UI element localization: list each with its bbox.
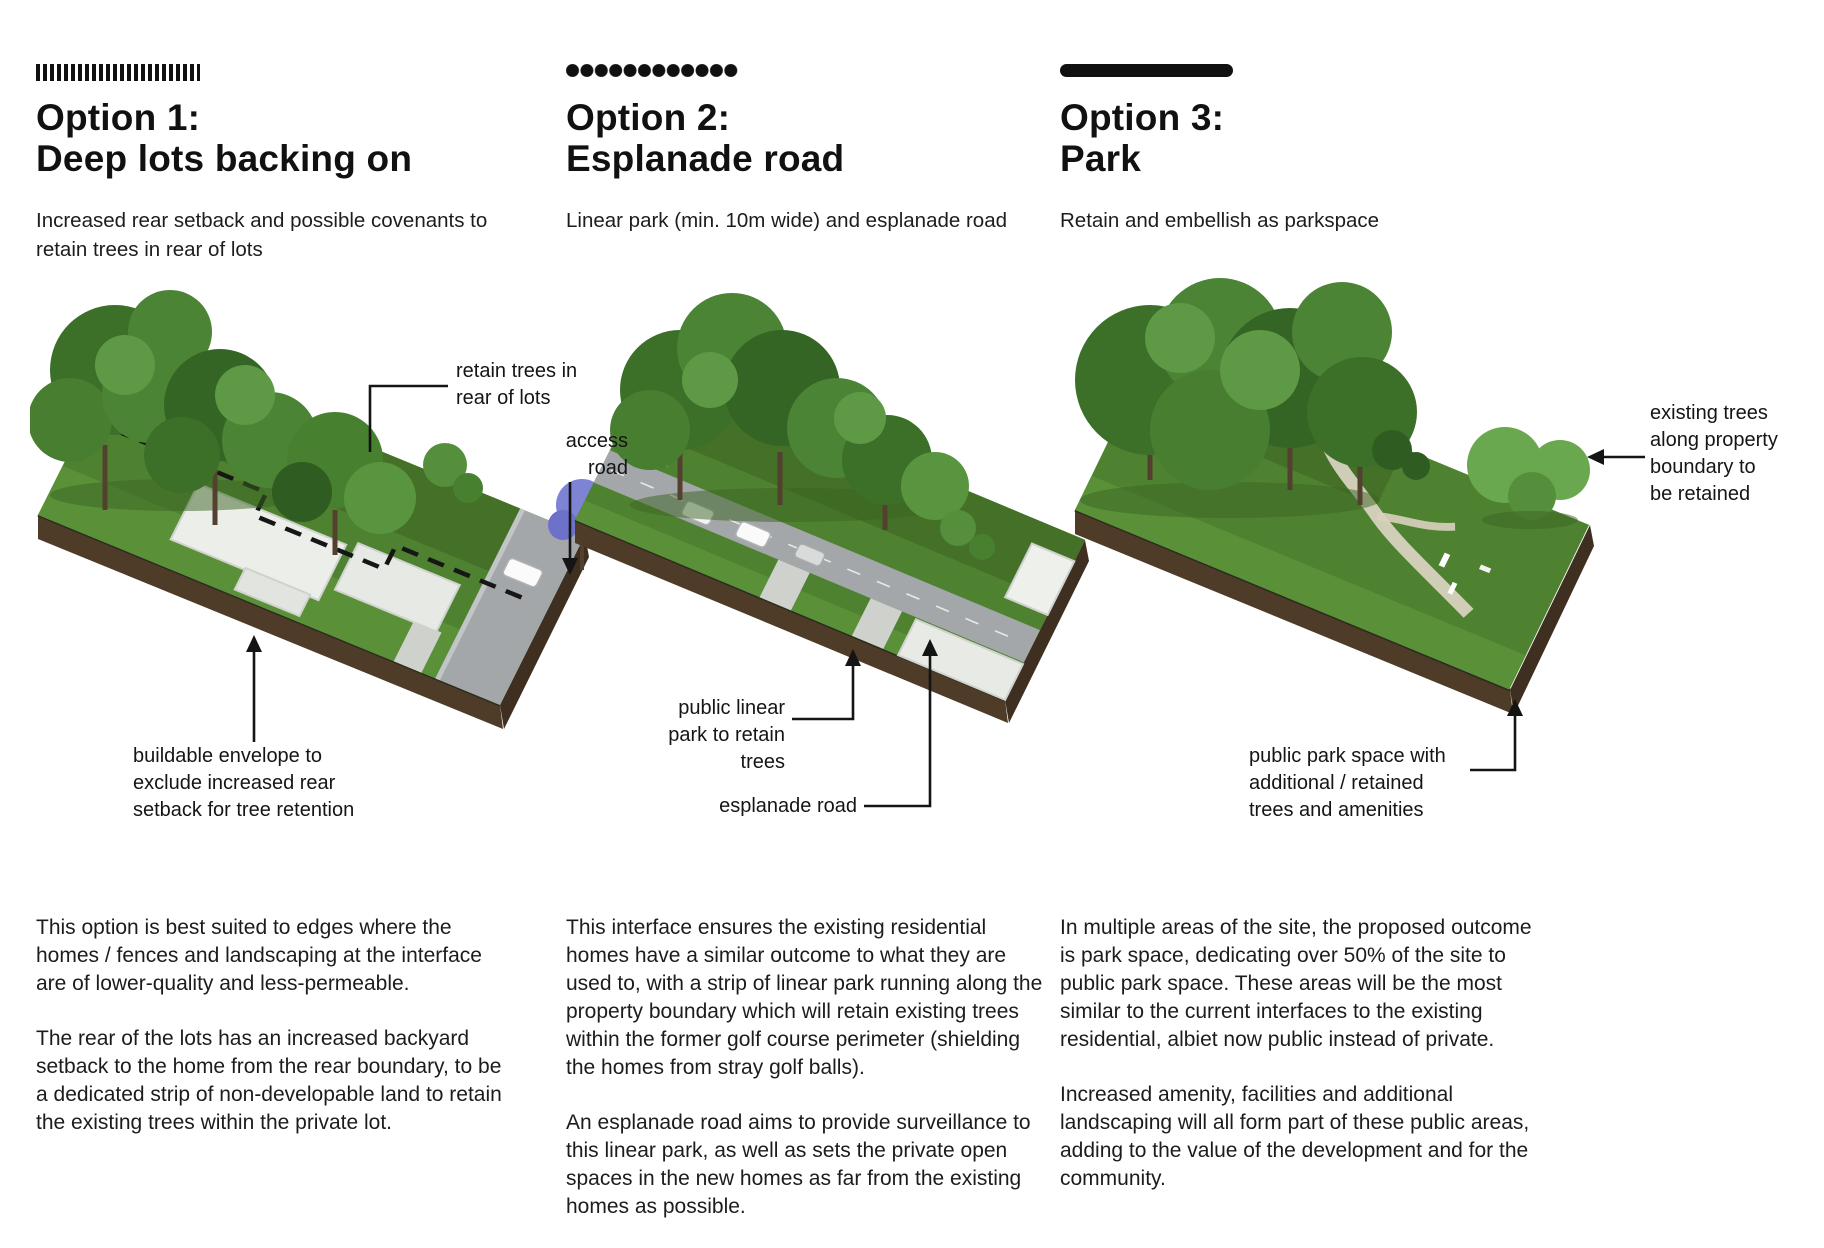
- option-2-subtitle: Linear park (min. 10m wide) and esplanad…: [566, 206, 1041, 235]
- pattern-bars-icon: [36, 64, 200, 81]
- access-road-annotation: access road: [522, 428, 628, 482]
- option-2-column: Option 2: Esplanade road Linear park (mi…: [566, 0, 1066, 1196]
- option-1-column: Option 1: Deep lots backing on Increased…: [36, 0, 536, 1196]
- pattern-solid-bar-icon: [1060, 64, 1233, 77]
- option-1-paragraph-2: The rear of the lots has an increased ba…: [36, 1025, 516, 1137]
- option-3-title: Option 3: Park: [1060, 97, 1224, 179]
- option-3-column: Option 3: Park Retain and embellish as p…: [1060, 0, 1560, 1196]
- retain-trees-annotation: retain trees in rear of lots: [456, 358, 577, 412]
- option-1-subtitle: Increased rear setback and possible cove…: [36, 206, 511, 264]
- pattern-dots-icon: [566, 64, 738, 77]
- option-2-title: Option 2: Esplanade road: [566, 97, 844, 179]
- option-3-subtitle: Retain and embellish as parkspace: [1060, 206, 1535, 235]
- public-park-space-annotation: public park space with additional / reta…: [1249, 743, 1446, 824]
- option-1-title: Option 1: Deep lots backing on: [36, 97, 412, 179]
- esplanade-road-annotation: esplanade road: [660, 793, 857, 820]
- option-1-body: This option is best suited to edges wher…: [36, 914, 516, 1164]
- option-2-paragraph-1: This interface ensures the existing resi…: [566, 914, 1046, 1082]
- arrowhead-left-icon: [1587, 449, 1604, 465]
- option-1-paragraph-1: This option is best suited to edges wher…: [36, 914, 516, 998]
- existing-trees-annotation: existing trees along property boundary t…: [1650, 400, 1778, 508]
- option-2-paragraph-2: An esplanade road aims to provide survei…: [566, 1109, 1046, 1221]
- option-2-body: This interface ensures the existing resi…: [566, 914, 1046, 1248]
- buildable-envelope-annotation: buildable envelope to exclude increased …: [133, 743, 354, 824]
- option-3-paragraph-2: Increased amenity, facilities and additi…: [1060, 1081, 1540, 1193]
- option-3-body: In multiple areas of the site, the propo…: [1060, 914, 1540, 1220]
- option-3-paragraph-1: In multiple areas of the site, the propo…: [1060, 914, 1540, 1054]
- page: Option 1: Deep lots backing on Increased…: [0, 0, 1824, 1196]
- public-linear-park-annotation: public linear park to retain trees: [628, 695, 785, 776]
